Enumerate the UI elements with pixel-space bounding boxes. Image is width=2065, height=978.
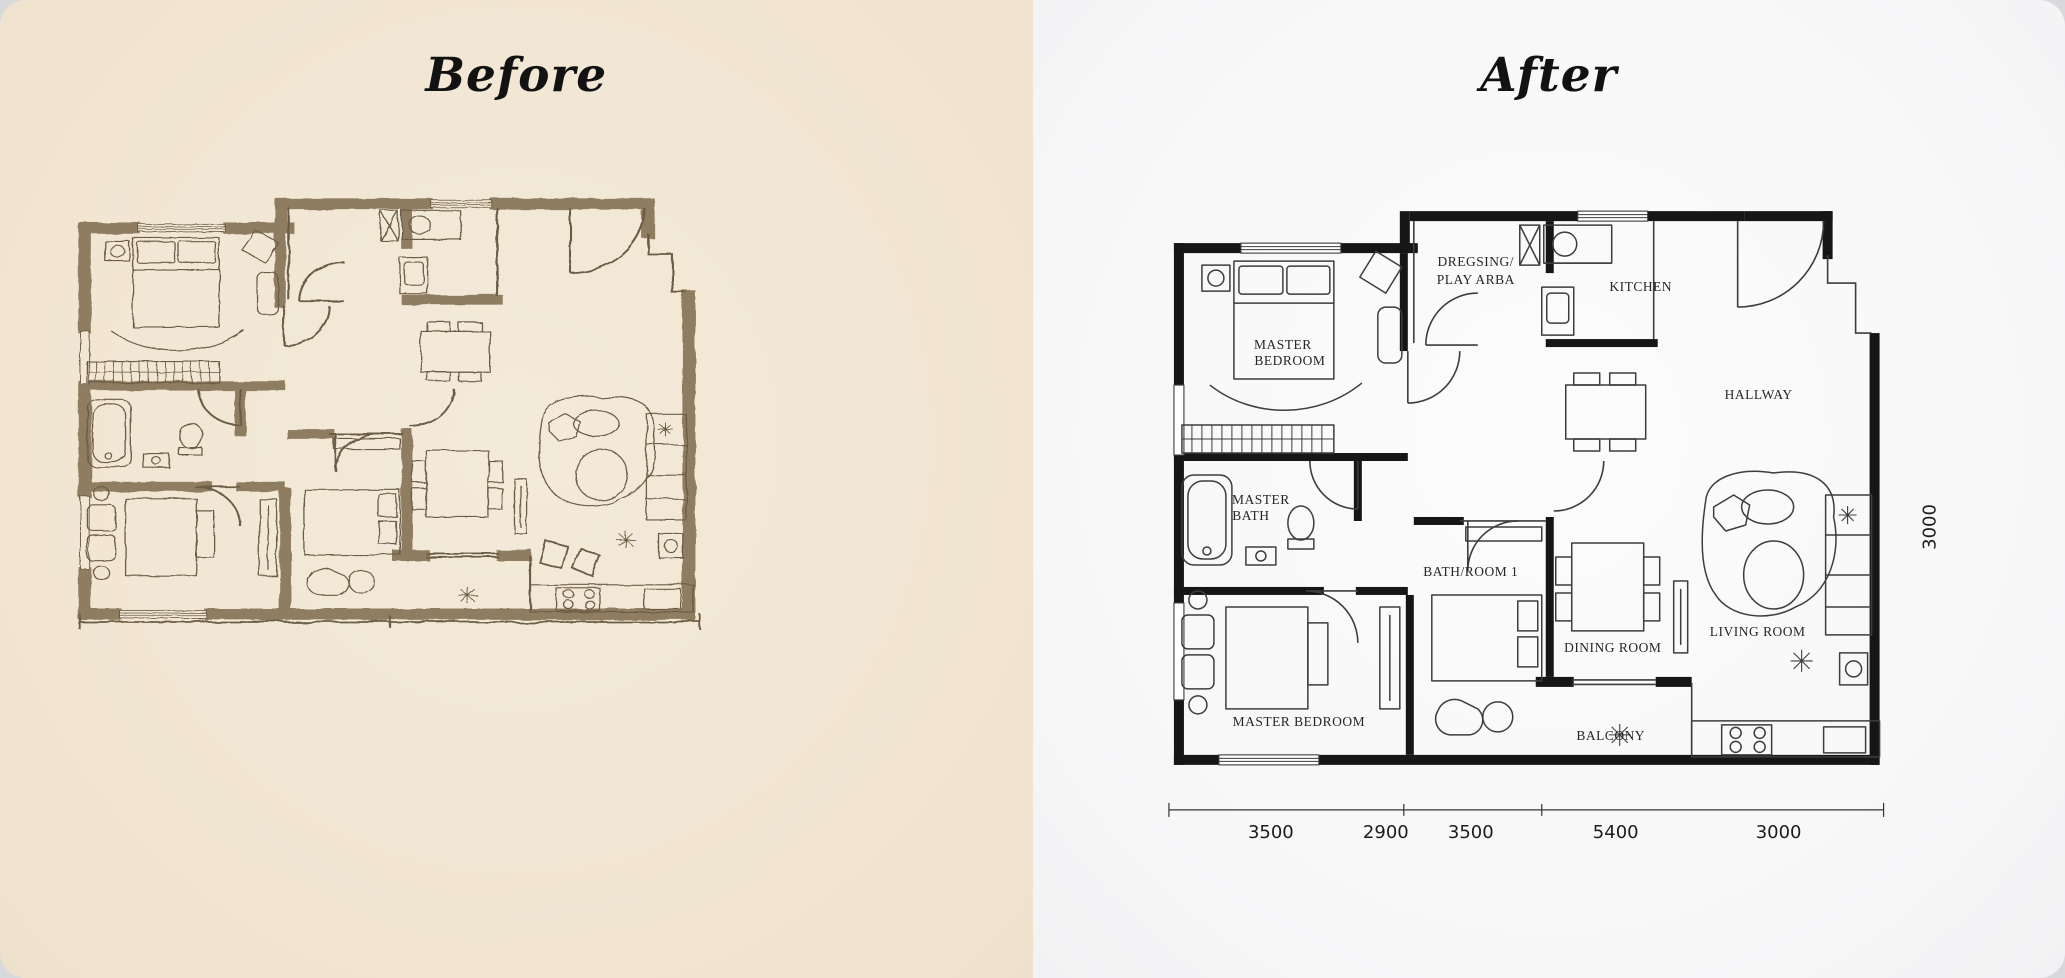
after-cad-floorplan: MASTER BEDROOM DREGSING/ PLAY ARBA KITCH…	[1033, 0, 2065, 978]
dim-5400: 5400	[1592, 822, 1638, 843]
label-living-room: LIVING ROOM	[1709, 624, 1805, 639]
dimension-annotations: 3500 2900 3500 5400 3000 3000	[1168, 504, 1940, 843]
label-master-bedroom-top-line2: BEDROOM	[1254, 353, 1325, 368]
before-sketch-floorplan	[0, 0, 1033, 978]
stool-icon	[572, 548, 600, 576]
dim-2900: 2900	[1362, 822, 1408, 843]
label-dressing-line2: PLAY ARBA	[1436, 272, 1514, 287]
label-master-bedroom-bottom: MASTER BEDROOM	[1232, 714, 1365, 729]
dim-3000-right: 3000	[1919, 504, 1940, 550]
label-kitchen: KITCHEN	[1609, 279, 1672, 294]
sketch-plan-instance	[80, 200, 693, 618]
dim-3500-b: 3500	[1447, 822, 1493, 843]
before-after-card: Before After MASTER BEDROOM DREGSING/ PL…	[0, 0, 2065, 978]
dim-3500-a: 3500	[1247, 822, 1293, 843]
label-dressing-line1: DREGSING/	[1437, 254, 1513, 269]
dim-3000-bottom: 3000	[1755, 822, 1801, 843]
label-master-bath-line2: BATH	[1232, 508, 1269, 523]
cad-plan-instance	[1173, 211, 1879, 765]
label-master-bedroom-top-line1: MASTER	[1254, 337, 1312, 352]
before-panel: Before	[0, 0, 1033, 978]
room-labels: MASTER BEDROOM DREGSING/ PLAY ARBA KITCH…	[1232, 254, 1805, 743]
dimension-line	[1168, 803, 1883, 817]
label-hallway: HALLWAY	[1724, 387, 1792, 402]
label-dining-room: DINING ROOM	[1564, 640, 1661, 655]
stool-icon	[539, 540, 567, 568]
label-bathroom-1: BATH/ROOM 1	[1423, 564, 1518, 579]
label-master-bath-line1: MASTER	[1232, 492, 1290, 507]
label-balcony: BALCONY	[1576, 728, 1645, 743]
after-panel: After MASTER BEDROOM DREGSING/ PLAY ARBA…	[1033, 0, 2065, 978]
